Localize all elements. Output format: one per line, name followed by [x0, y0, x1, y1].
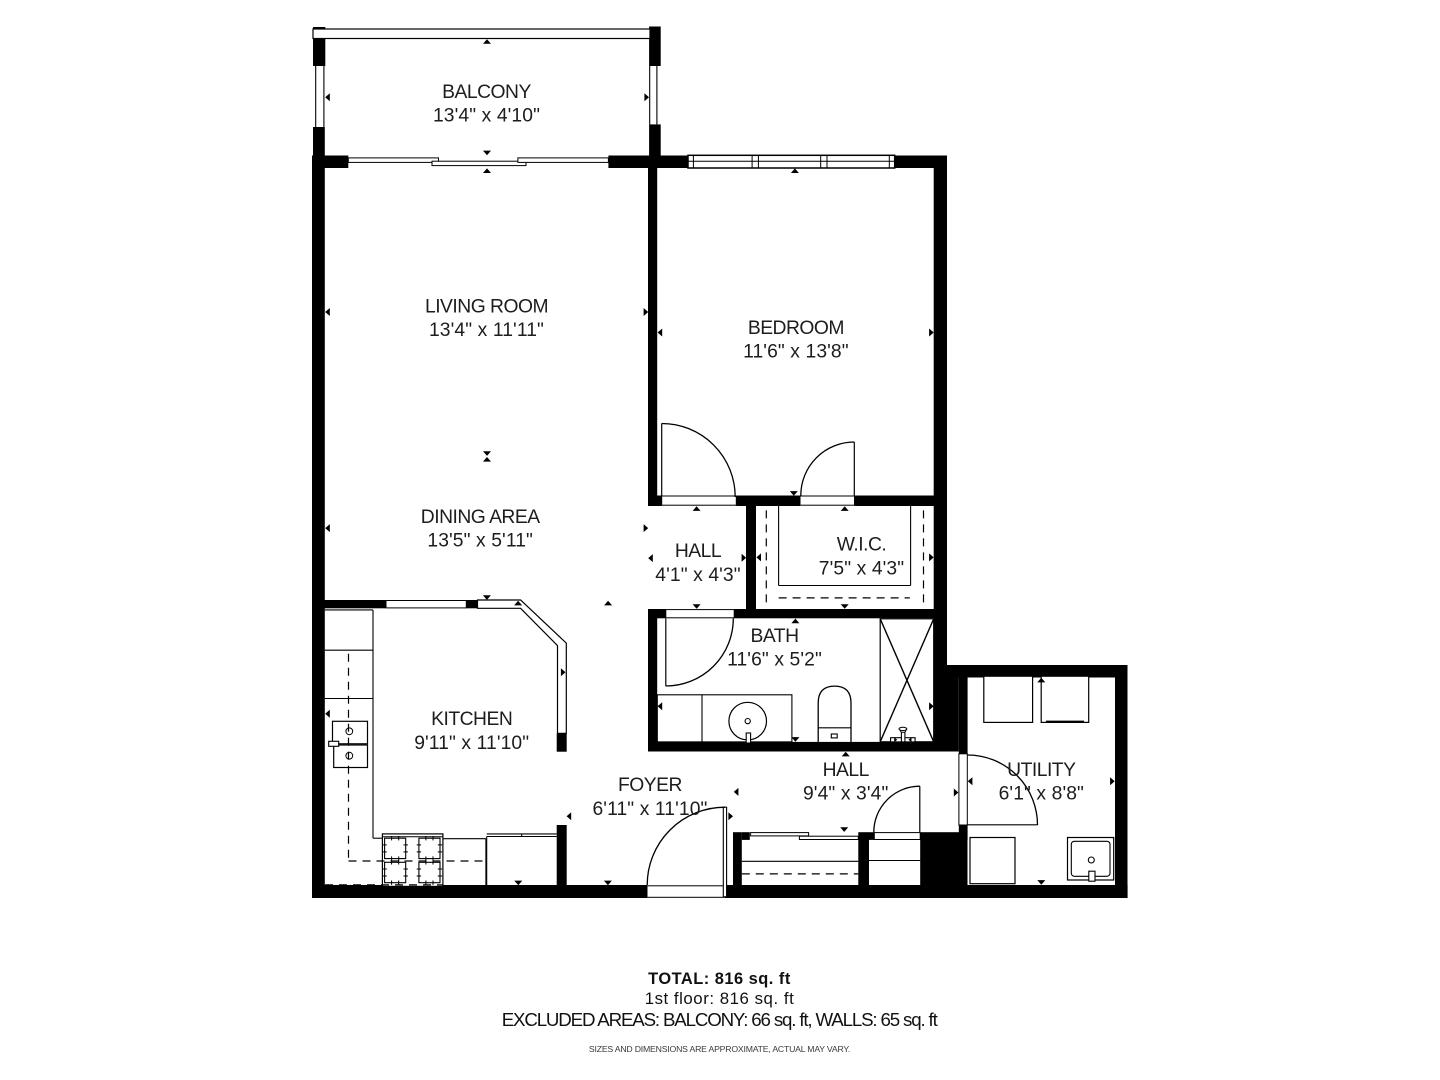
svg-text:DINING AREA: DINING AREA	[421, 507, 540, 528]
svg-text:9'4" x 3'4": 9'4" x 3'4"	[803, 784, 888, 805]
svg-text:SIZES AND DIMENSIONS ARE APPRO: SIZES AND DIMENSIONS ARE APPROXIMATE, AC…	[589, 1044, 850, 1054]
svg-text:6'11" x 11'10": 6'11" x 11'10"	[592, 799, 707, 820]
svg-text:UTILITY: UTILITY	[1007, 760, 1076, 781]
svg-text:TOTAL: 816 sq. ft: TOTAL: 816 sq. ft	[648, 970, 791, 988]
svg-text:9'11" x 11'10": 9'11" x 11'10"	[414, 733, 529, 754]
svg-text:13'4" x 4'10": 13'4" x 4'10"	[433, 106, 540, 127]
svg-text:7'5" x 4'3": 7'5" x 4'3"	[819, 558, 904, 579]
svg-text:LIVING ROOM: LIVING ROOM	[425, 296, 548, 317]
svg-text:BALCONY: BALCONY	[442, 82, 531, 103]
svg-text:11'6" x 13'8": 11'6" x 13'8"	[743, 342, 849, 363]
svg-text:4'1" x 4'3": 4'1" x 4'3"	[655, 565, 740, 586]
svg-text:6'1" x 8'8": 6'1" x 8'8"	[999, 784, 1084, 805]
svg-text:BEDROOM: BEDROOM	[748, 318, 844, 339]
svg-text:EXCLUDED AREAS: BALCONY: 66 sq: EXCLUDED AREAS: BALCONY: 66 sq. ft, WALL…	[502, 1009, 939, 1030]
svg-text:13'5" x 5'11": 13'5" x 5'11"	[427, 531, 533, 552]
svg-text:KITCHEN: KITCHEN	[431, 709, 512, 730]
svg-text:HALL: HALL	[675, 541, 722, 562]
svg-text:HALL: HALL	[823, 760, 870, 781]
svg-text:FOYER: FOYER	[618, 775, 682, 796]
svg-text:BATH: BATH	[751, 626, 799, 647]
svg-text:11'6" x 5'2": 11'6" x 5'2"	[727, 650, 822, 671]
svg-text:W.I.C.: W.I.C.	[837, 535, 887, 556]
svg-text:13'4" x 11'11": 13'4" x 11'11"	[429, 320, 544, 341]
svg-text:1st floor: 816 sq. ft: 1st floor: 816 sq. ft	[645, 989, 795, 1008]
